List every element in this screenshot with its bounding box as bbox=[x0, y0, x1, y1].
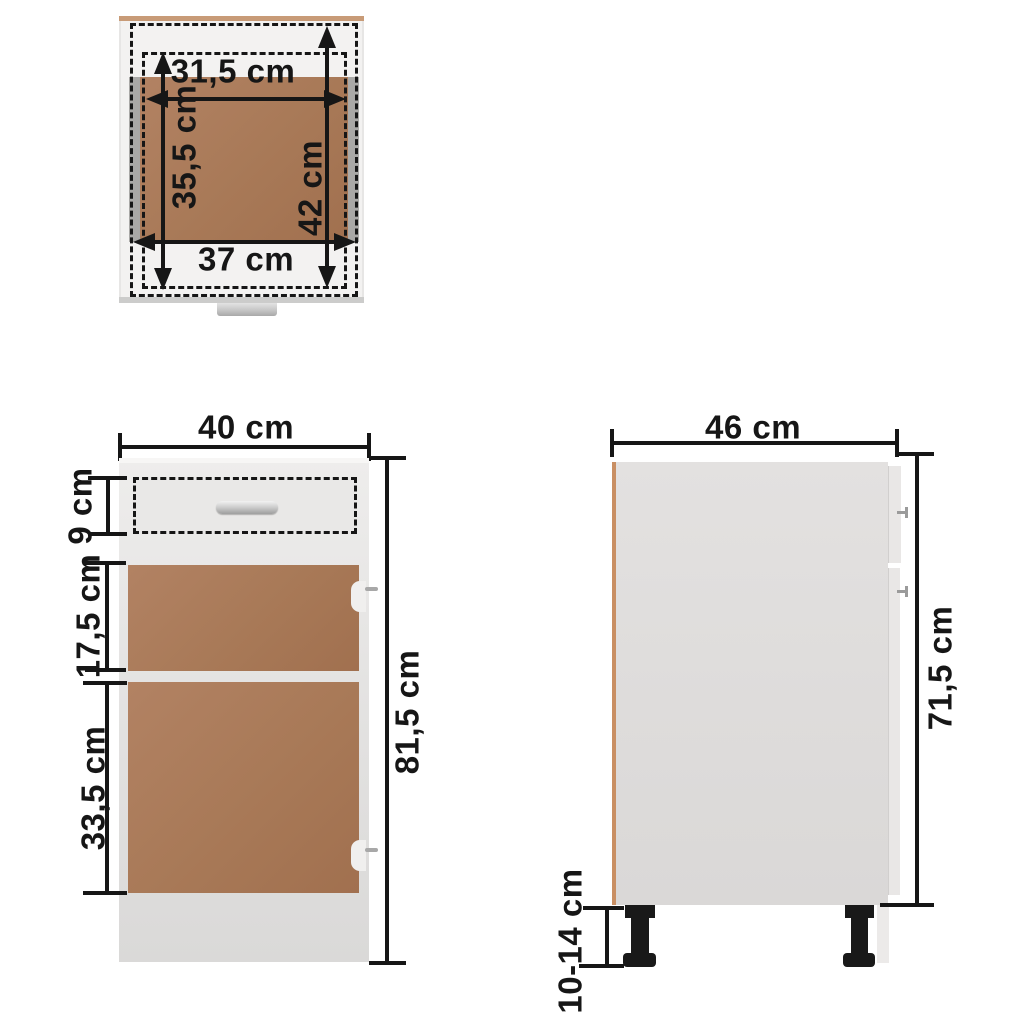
side-view: 46 cm 71,5 cm 10-14 cm bbox=[480, 390, 1024, 1024]
dim-tick bbox=[118, 433, 122, 461]
arrowhead-right-icon bbox=[334, 233, 356, 251]
dim-line-body-height bbox=[915, 454, 919, 905]
arrowhead-left-icon bbox=[133, 233, 155, 251]
upper-door-panel bbox=[128, 565, 359, 671]
arrowhead-down-icon bbox=[154, 268, 172, 290]
side-back-edge bbox=[612, 462, 616, 905]
dim-label-leg-height: 10-14 cm bbox=[554, 868, 587, 1013]
dim-label-drawer-inner-depth: 35,5 cm bbox=[168, 85, 201, 210]
arrowhead-up-icon bbox=[318, 26, 336, 48]
dim-tick bbox=[897, 452, 934, 456]
dim-label-total-height: 81,5 cm bbox=[391, 650, 424, 775]
dim-label-cabinet-inner-width: 37 cm bbox=[198, 243, 294, 276]
back-leg-foot bbox=[843, 953, 875, 967]
dim-label-drawer-inner-width: 31,5 cm bbox=[171, 55, 296, 88]
door-handle-side-cap bbox=[905, 586, 908, 597]
drawer-handle-side-cap bbox=[905, 507, 908, 518]
dim-tick bbox=[369, 961, 406, 965]
dim-line-leg-height bbox=[605, 908, 609, 966]
dim-label-drawer-outer-depth: 42 cm bbox=[294, 140, 327, 236]
hinge-lower bbox=[351, 840, 366, 871]
front-leg-foot bbox=[623, 953, 656, 967]
dim-label-drawer-front-height: 9 cm bbox=[64, 467, 97, 544]
dim-line-cabinet-depth bbox=[612, 441, 897, 445]
dim-line-cabinet-width bbox=[120, 445, 369, 449]
dim-tick bbox=[83, 681, 127, 685]
dim-label-cabinet-depth: 46 cm bbox=[705, 411, 801, 444]
dim-tick bbox=[369, 456, 406, 460]
dim-line-drawer-front-height bbox=[106, 478, 110, 536]
back-leg-stem bbox=[851, 917, 868, 956]
dim-tick bbox=[583, 906, 624, 910]
dim-tick bbox=[610, 429, 614, 457]
dim-label-upper-door-height: 17,5 cm bbox=[72, 554, 105, 679]
hinge-upper bbox=[351, 581, 366, 612]
dim-tick bbox=[83, 891, 127, 895]
drawer-handle-top-view bbox=[217, 303, 277, 316]
dim-tick bbox=[880, 903, 934, 907]
side-door-front-edge bbox=[888, 568, 900, 895]
front-leg-stem bbox=[631, 917, 649, 956]
dim-label-cabinet-width: 40 cm bbox=[198, 411, 294, 444]
dim-label-lower-door-height: 33,5 cm bbox=[77, 726, 110, 851]
front-worktop-edge bbox=[119, 458, 369, 463]
dim-label-body-height: 71,5 cm bbox=[924, 606, 957, 731]
drawer-handle-front-view bbox=[216, 501, 278, 514]
side-drawer-front-edge bbox=[888, 466, 901, 563]
hinge-pin-lower bbox=[365, 848, 378, 852]
arrowhead-down-icon bbox=[318, 266, 336, 288]
top-view: 31,5 cm 35,5 cm 42 cm 37 cm bbox=[0, 0, 480, 330]
hinge-pin-upper bbox=[365, 587, 378, 591]
lower-door-panel bbox=[128, 682, 359, 893]
arrowhead-up-icon bbox=[154, 52, 172, 74]
dimension-diagram: 31,5 cm 35,5 cm 42 cm 37 cm 40 cm bbox=[0, 0, 1024, 1024]
side-door-bottom-edge bbox=[877, 905, 889, 963]
side-cabinet-body bbox=[612, 462, 888, 905]
front-view: 40 cm 9 cm 17,5 cm 33,5 cm bbox=[0, 390, 480, 1024]
top-view-back-edge bbox=[119, 16, 364, 21]
